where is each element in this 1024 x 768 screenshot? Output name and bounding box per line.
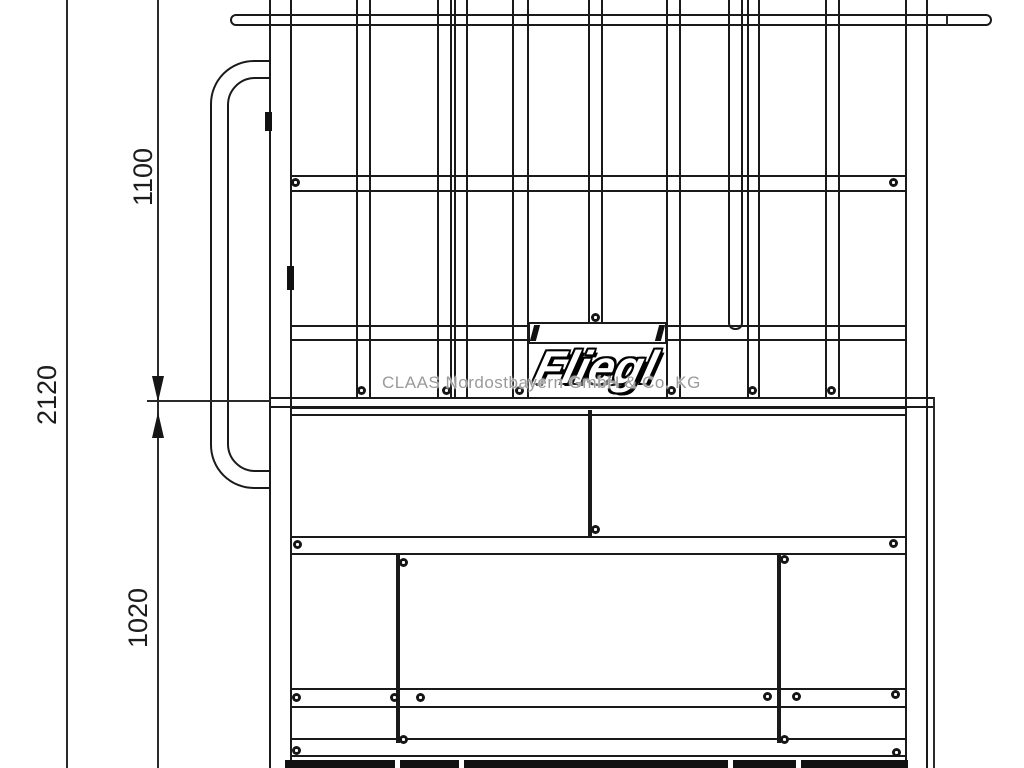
dim-extension-line [147,400,270,402]
screw [892,748,901,757]
floor-rail-lower-edge [292,407,905,416]
screw [792,692,801,701]
platform-rail-2 [292,688,905,708]
top-tube-joint-line [946,15,948,25]
dim-arrow-up-icon [152,412,164,438]
rack-bar [666,0,681,397]
platform-bar-center [588,410,592,538]
rack-bar [454,0,468,397]
platform-right-edge-line [933,397,935,768]
rack-bar [747,0,760,397]
screw [780,735,789,744]
screw [591,525,600,534]
bottom-strip-gap [728,760,733,768]
watermark-text: CLAAS Nordostbayern GmbH & Co. KG [382,373,701,393]
latch-mark [265,112,272,131]
screw [891,690,900,699]
rack-bar [356,0,371,397]
screw [827,386,836,395]
top-tube [230,14,992,26]
screw [416,693,425,702]
screw [763,692,772,701]
left-post [269,0,292,768]
dim-line-overall [66,0,68,768]
dim-label-overall: 2120 [33,355,61,435]
screw [889,178,898,187]
rack-bar-center [588,0,603,324]
rack-bar [825,0,840,397]
latch-mark [287,266,294,290]
screw [780,555,789,564]
platform-bar-left [396,553,400,743]
screw [889,539,898,548]
screw [292,746,301,755]
screw [293,540,302,549]
dim-arrow-down-icon [152,376,164,402]
platform-rail-3 [292,738,905,757]
screw [399,558,408,567]
screw [591,313,600,322]
platform-rail-1 [292,536,905,555]
bottom-strip-gap [796,760,801,768]
technical-drawing-canvas: Fliegl CLAAS Nordostbayern GmbH & Co. KG… [0,0,1024,768]
bottom-strip-gap [395,760,400,768]
rack-bar [437,0,452,397]
rack-bar [512,0,529,397]
dim-label-lower: 1020 [124,578,152,658]
screw [748,386,757,395]
rack-bar-short [728,0,743,330]
dim-label-upper: 1100 [129,137,157,217]
bottom-strip-gap [459,760,464,768]
platform-bar-right [777,553,781,743]
screw [399,735,408,744]
screw [390,693,399,702]
screw [357,386,366,395]
bottom-strip [285,760,908,768]
screw [291,178,300,187]
right-post [905,0,928,768]
screw [292,693,301,702]
